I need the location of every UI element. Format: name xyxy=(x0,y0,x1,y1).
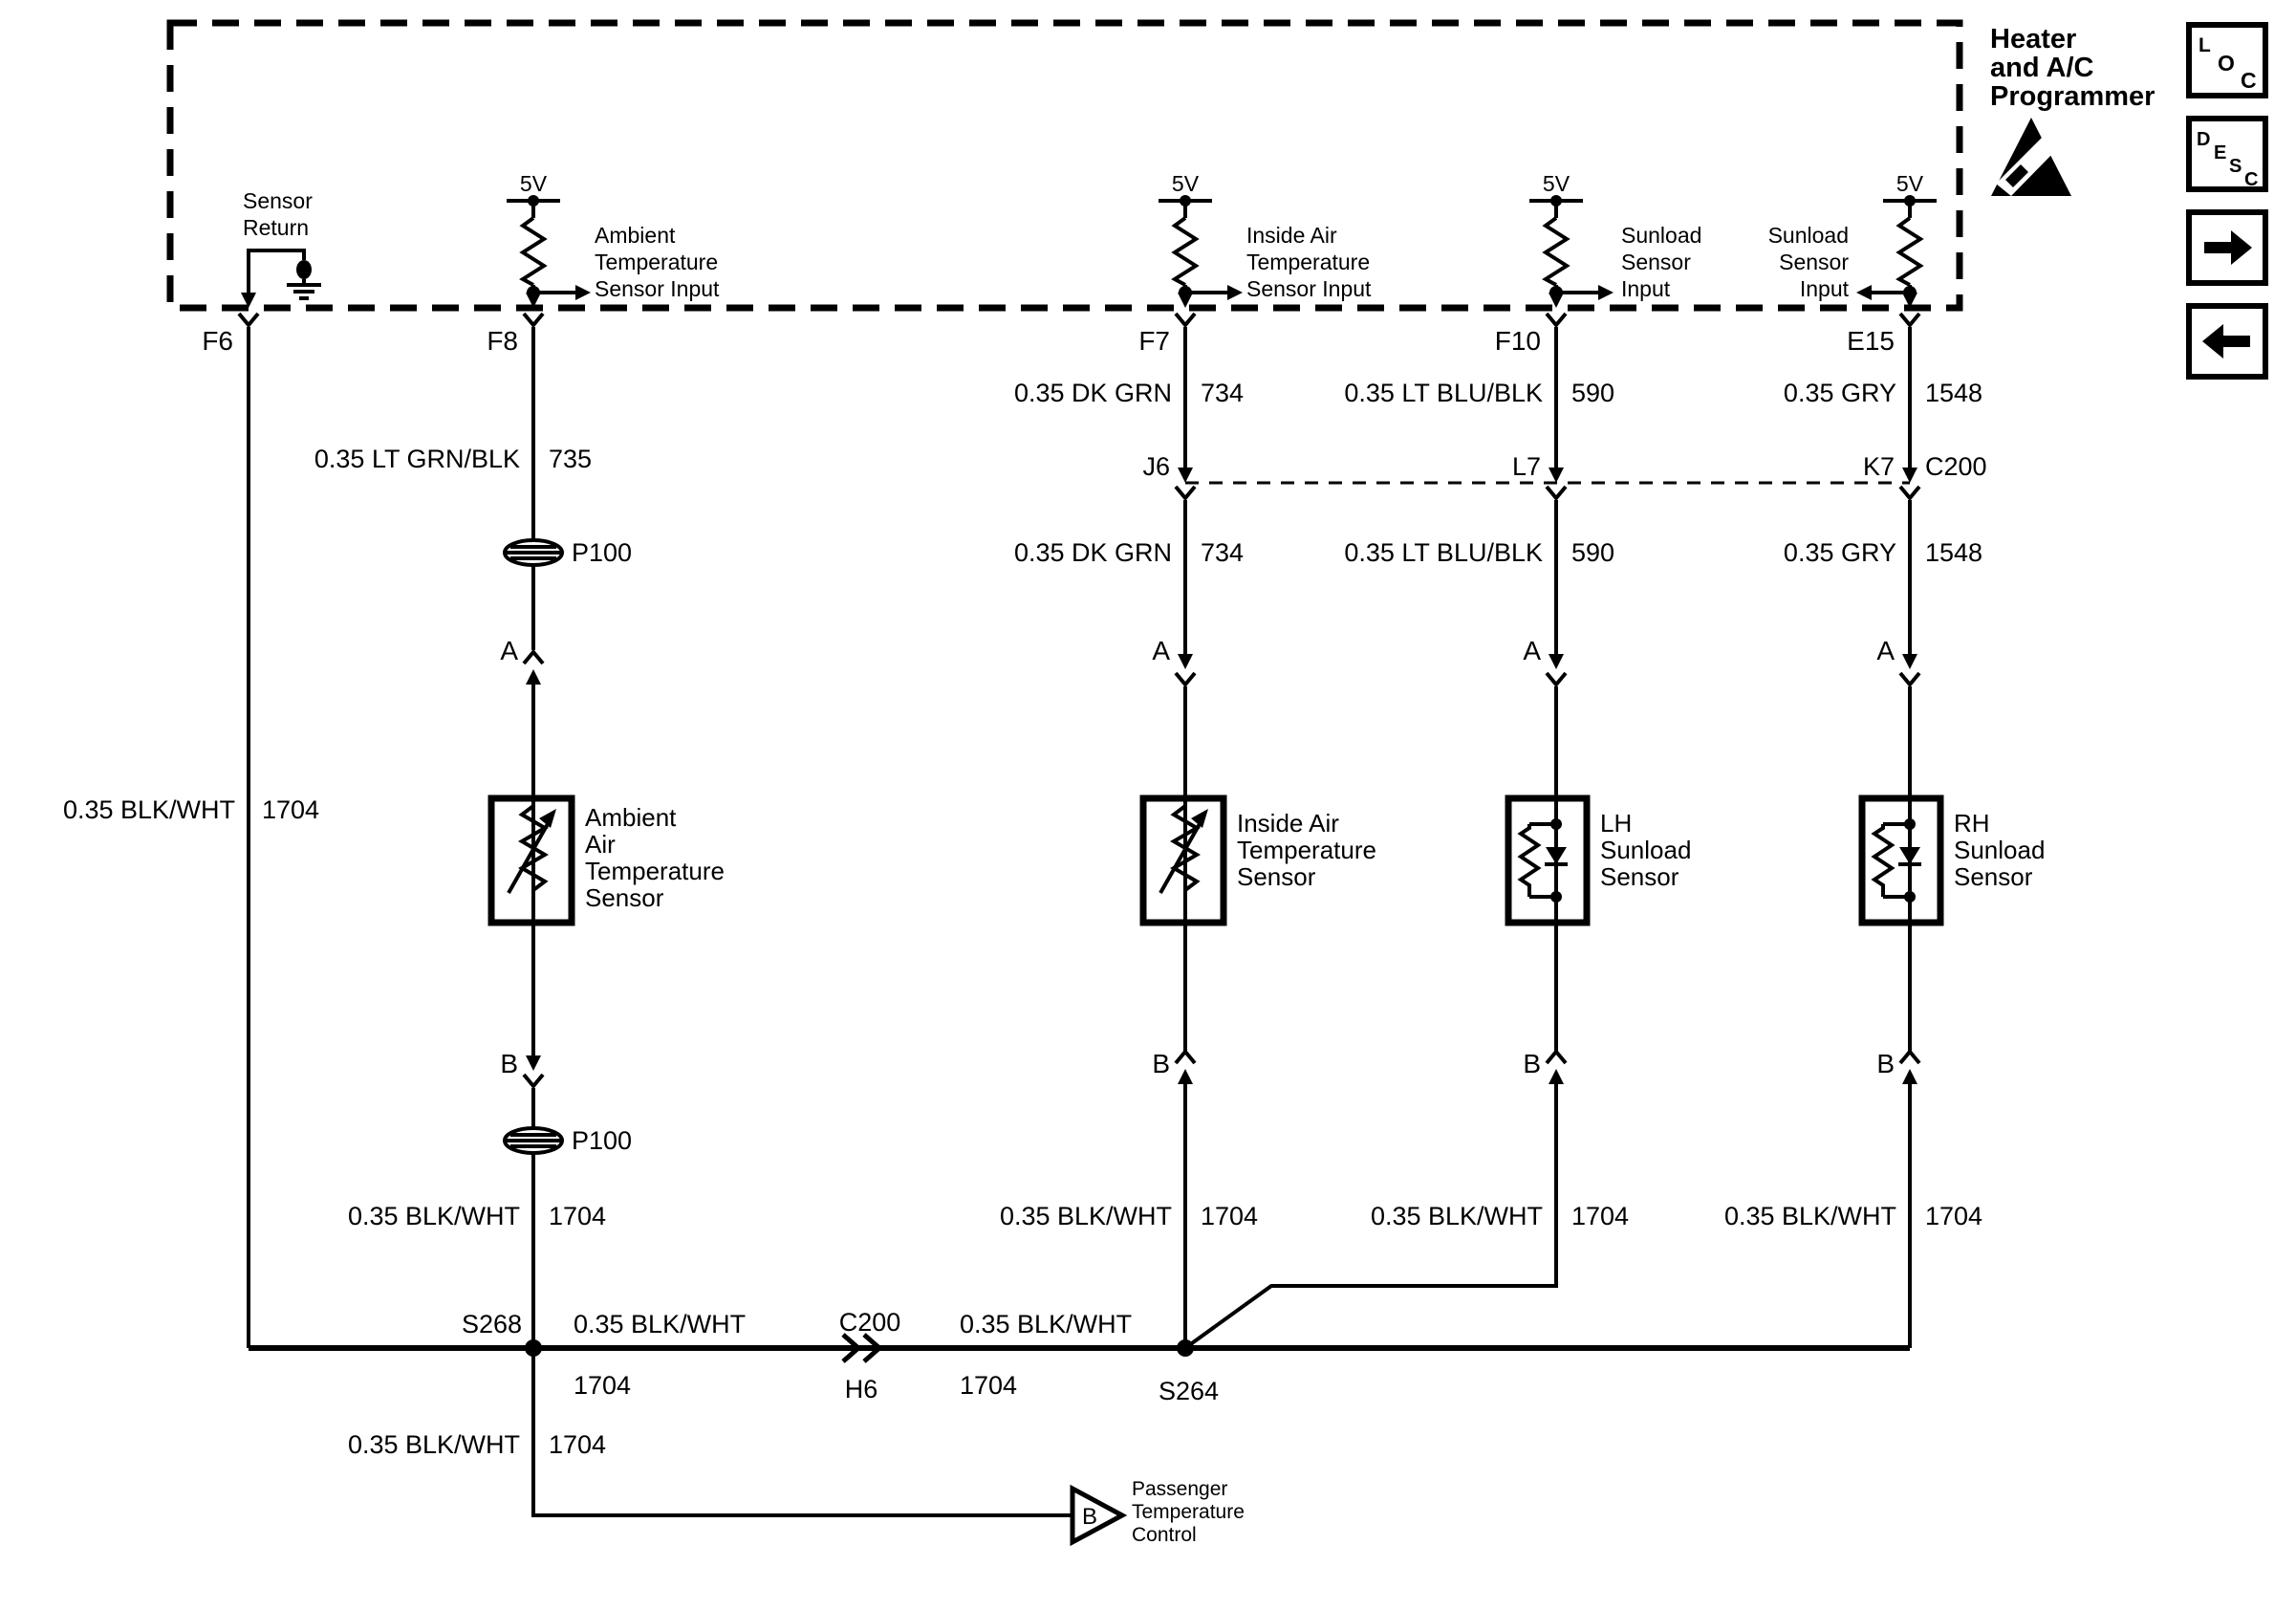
wire-color-label: 0.35 GRY xyxy=(1784,538,1896,567)
terminal-connector-up-icon xyxy=(1176,1052,1195,1084)
wire-circuit-label: 1704 xyxy=(574,1371,631,1400)
pin-label-e15: E15 xyxy=(1847,326,1895,356)
programmer-dashed-box xyxy=(170,23,1960,308)
supply-lh-sunload-input: 5V Sunload Sensor Input xyxy=(1529,171,1701,308)
grommet-icon-p100-upper xyxy=(505,540,562,565)
pin-label-f10: F10 xyxy=(1495,326,1541,356)
resistor-icon xyxy=(523,218,544,285)
flow-arrow-icon xyxy=(1902,468,1917,483)
inside-air-temperature-sensor: Inside Air Temperature Sensor xyxy=(1143,798,1376,923)
title-line: Heater xyxy=(1990,24,2076,54)
desc-letter: C xyxy=(2244,169,2258,190)
connector-pin-k7: K7 xyxy=(1863,452,1895,481)
wire-color-label: 0.35 LT BLU/BLK xyxy=(1344,538,1543,567)
output-label: Control xyxy=(1132,1524,1197,1546)
terminal-chevron-icon xyxy=(1176,487,1195,498)
terminal-chevron-icon xyxy=(239,314,258,325)
terminal-connector-down-icon xyxy=(1176,654,1195,685)
junction-dot xyxy=(1180,195,1191,207)
lh-sunload-sensor: LH Sunload Sensor xyxy=(1508,798,1691,923)
terminal-label-a: A xyxy=(1876,636,1895,665)
resistor-icon xyxy=(1874,824,1892,897)
column-f7: 0.35 DK GRN 734 0.35 DK GRN 734 A Inside… xyxy=(1000,327,1376,1348)
wire-color-label: 0.35 BLK/WHT xyxy=(1000,1202,1172,1230)
terminal-connector-down-icon xyxy=(1547,654,1566,685)
signal-arrow-icon xyxy=(575,285,591,300)
wire-circuit-label: 1704 xyxy=(1571,1202,1629,1230)
resistor-icon xyxy=(1521,824,1538,897)
c200-inline-connector: J6 L7 K7 C200 xyxy=(1142,452,1986,498)
component-label: LH xyxy=(1600,809,1632,838)
component-label: Sensor xyxy=(1600,862,1679,891)
flow-arrow-icon xyxy=(1549,468,1564,483)
terminal-label-a: A xyxy=(500,636,518,665)
terminal-connector-down-icon xyxy=(1900,654,1919,685)
column-f6: 0.35 BLK/WHT 1704 xyxy=(63,327,319,1348)
terminal-connector-up-icon xyxy=(1900,1052,1919,1084)
loc-letter: C xyxy=(2241,68,2257,93)
resistor-icon xyxy=(1546,218,1567,285)
terminal-connector-up-icon xyxy=(524,652,543,685)
component-label: Ambient xyxy=(585,803,677,832)
ambient-air-temperature-sensor: Ambient Air Temperature Sensor xyxy=(491,798,725,923)
terminal-chevron-icon xyxy=(1176,314,1195,325)
terminal-label-b: B xyxy=(1523,1049,1541,1078)
photodiode-icon xyxy=(1898,847,1921,864)
flow-arrow-icon xyxy=(1178,468,1193,483)
wire-color-label: 0.35 BLK/WHT xyxy=(574,1310,746,1338)
wiring-diagram-page: Heater and A/C Programmer L O C D E S C xyxy=(0,0,2296,1610)
ground-bus: S268 S264 0.35 BLK/WHT 1704 C200 H6 0.35… xyxy=(249,1308,1910,1405)
photoresistor-branch-icon xyxy=(1874,824,1910,897)
input-label: Sunload xyxy=(1621,223,1701,248)
component-label: Sunload xyxy=(1954,836,2045,864)
wire-circuit-label: 735 xyxy=(549,445,592,473)
nav-buttons: L O C D E S C xyxy=(2189,25,2265,377)
component-label: Inside Air xyxy=(1237,809,1339,838)
terminal-label-b: B xyxy=(1876,1049,1895,1078)
output-pin-label: B xyxy=(1082,1504,1097,1530)
pin-label-f8: F8 xyxy=(487,326,518,356)
esd-warning-icon xyxy=(1991,118,2071,196)
resistor-icon xyxy=(1175,218,1196,285)
junction-dot xyxy=(1904,818,1916,830)
connector-pin-j6: J6 xyxy=(1142,452,1170,481)
wire-circuit-label: 1704 xyxy=(262,795,319,824)
rh-sunload-sensor: RH Sunload Sensor xyxy=(1862,798,2045,923)
wire-circuit-label: 1704 xyxy=(1201,1202,1258,1230)
terminal-label-b: B xyxy=(500,1049,518,1078)
supply-5v-label: 5V xyxy=(1172,171,1200,196)
next-page-button[interactable] xyxy=(2189,212,2265,283)
connector-label-p100: P100 xyxy=(572,538,632,567)
sensor-return-label: Sensor xyxy=(243,188,313,213)
column-f8: 0.35 LT GRN/BLK 735 P100 A Ambient Air T… xyxy=(314,327,725,1348)
loc-letter: L xyxy=(2199,34,2211,56)
terminal-chevron-icon xyxy=(1547,487,1566,498)
splice-label-s268: S268 xyxy=(462,1310,522,1338)
supply-inside-air-input: 5V Inside Air Temperature Sensor Input xyxy=(1159,171,1372,308)
output-passenger-temperature-control: 0.35 BLK/WHT 1704 B Passenger Temperatur… xyxy=(348,1348,1245,1546)
desc-button[interactable]: D E S C xyxy=(2189,119,2265,190)
input-label: Input xyxy=(1621,276,1671,301)
input-label: Input xyxy=(1800,276,1850,301)
desc-letter: E xyxy=(2214,142,2226,163)
bus-connector-label: C200 xyxy=(839,1308,901,1337)
terminal-chevron-icon xyxy=(1900,487,1919,498)
supply-ambient-input: 5V Ambient Temperature Sensor Input xyxy=(507,171,720,308)
splice-dot-s264 xyxy=(1177,1339,1194,1357)
input-label: Temperature xyxy=(595,250,718,274)
splice-label-s264: S264 xyxy=(1159,1377,1219,1405)
supply-rh-sunload-input: 5V Sunload Sensor Input xyxy=(1768,171,1937,308)
input-label: Sensor Input xyxy=(1246,276,1372,301)
pin-label-f7: F7 xyxy=(1138,326,1170,356)
wire-circuit-label: 590 xyxy=(1571,538,1614,567)
component-label: Air xyxy=(585,830,616,859)
wire-color-label: 0.35 BLK/WHT xyxy=(63,795,235,824)
component-label: Temperature xyxy=(585,857,725,885)
wire-color-label: 0.35 DK GRN xyxy=(1014,538,1172,567)
grommet-icon-p100-lower xyxy=(505,1128,562,1153)
terminal-label-a: A xyxy=(1152,636,1170,665)
wire-circuit-label: 590 xyxy=(1571,379,1614,407)
connector-label-p100: P100 xyxy=(572,1126,632,1155)
wire-color-label: 0.35 BLK/WHT xyxy=(348,1202,520,1230)
sensor-return: Sensor Return xyxy=(241,188,321,308)
prev-page-button[interactable] xyxy=(2189,306,2265,377)
wire-circuit-label: 1704 xyxy=(549,1430,606,1459)
photodiode-icon xyxy=(1545,847,1568,864)
pin-label-f6: F6 xyxy=(202,326,233,356)
signal-arrow-icon xyxy=(1598,285,1614,300)
input-label: Sensor xyxy=(1779,250,1849,274)
title-line: Programmer xyxy=(1990,81,2155,112)
wire-circuit-label: 734 xyxy=(1201,379,1244,407)
programmer-title: Heater and A/C Programmer xyxy=(1990,24,2155,112)
terminal-label-b: B xyxy=(1152,1049,1170,1078)
desc-letter: S xyxy=(2229,156,2242,177)
output-label: Temperature xyxy=(1132,1501,1245,1523)
supply-5v-label: 5V xyxy=(1543,171,1570,196)
wire-circuit-label: 1704 xyxy=(1925,1202,1982,1230)
supply-5v-label: 5V xyxy=(1896,171,1924,196)
terminal-connector-down-icon xyxy=(524,1055,543,1086)
component-label: Sensor xyxy=(1954,862,2033,891)
junction-dot xyxy=(1550,818,1562,830)
connector-label-c200: C200 xyxy=(1925,452,1987,481)
component-label: RH xyxy=(1954,809,1990,838)
supply-5v-label: 5V xyxy=(520,171,548,196)
input-label: Temperature xyxy=(1246,250,1370,274)
junction-dot xyxy=(1904,195,1916,207)
wire-color-label: 0.35 BLK/WHT xyxy=(1371,1202,1543,1230)
terminal-chevron-icon xyxy=(1900,314,1919,325)
terminal-label-a: A xyxy=(1523,636,1541,665)
wire-circuit-label: 1704 xyxy=(549,1202,606,1230)
photoresistor-branch-icon xyxy=(1521,824,1556,897)
input-label: Sensor xyxy=(1621,250,1691,274)
ground-icon xyxy=(287,260,321,298)
desc-letter: D xyxy=(2197,129,2210,150)
wire-circuit-label: 734 xyxy=(1201,538,1244,567)
input-label: Sensor Input xyxy=(595,276,720,301)
component-label: Temperature xyxy=(1237,836,1376,864)
loc-letter: O xyxy=(2218,51,2235,76)
connector-pin-l7: L7 xyxy=(1512,452,1541,481)
terminal-connector-up-icon xyxy=(1547,1052,1566,1084)
bus-connector-pin: H6 xyxy=(845,1375,878,1403)
output-label: Passenger xyxy=(1132,1478,1227,1500)
component-label: Sensor xyxy=(1237,862,1316,891)
junction-dot xyxy=(1550,195,1562,207)
wire-circuit-label: 1548 xyxy=(1925,538,1982,567)
component-label: Sensor xyxy=(585,883,664,912)
input-label: Inside Air xyxy=(1246,223,1337,248)
wire-color-label: 0.35 BLK/WHT xyxy=(960,1310,1132,1338)
junction-dot xyxy=(528,195,539,207)
loc-button[interactable]: L O C xyxy=(2189,25,2265,96)
wire-color-label: 0.35 DK GRN xyxy=(1014,379,1172,407)
junction-dot xyxy=(1550,891,1562,903)
input-label: Sunload xyxy=(1768,223,1849,248)
wire-circuit-label: 1704 xyxy=(960,1371,1017,1400)
wire-color-label: 0.35 BLK/WHT xyxy=(1724,1202,1896,1230)
title-line: and A/C xyxy=(1990,53,2094,83)
wire-circuit-label: 1548 xyxy=(1925,379,1982,407)
input-label: Ambient xyxy=(595,223,676,248)
signal-arrow-icon xyxy=(1227,285,1243,300)
wire-color-label: 0.35 LT GRN/BLK xyxy=(314,445,520,473)
wire-color-label: 0.35 LT BLU/BLK xyxy=(1344,379,1543,407)
junction-dot xyxy=(1904,891,1916,903)
resistor-icon xyxy=(1899,218,1920,285)
programmer-pins: F6 F8 F7 F10 E15 xyxy=(202,314,1919,356)
signal-arrow-icon xyxy=(1856,285,1872,300)
terminal-chevron-icon xyxy=(1547,314,1566,325)
wire-color-label: 0.35 GRY xyxy=(1784,379,1896,407)
wire-color-label: 0.35 BLK/WHT xyxy=(348,1430,520,1459)
component-label: Sunload xyxy=(1600,836,1691,864)
sensor-return-label: Return xyxy=(243,215,309,240)
terminal-chevron-icon xyxy=(524,314,543,325)
